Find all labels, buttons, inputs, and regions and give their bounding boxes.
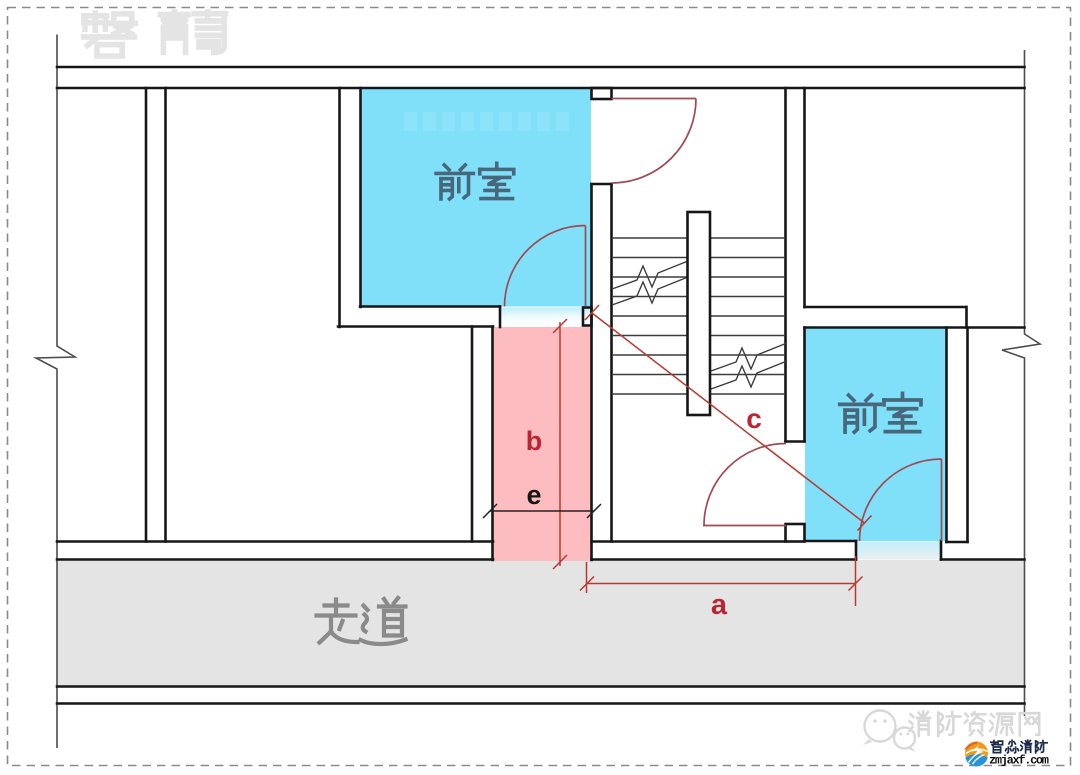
svg-text:c: c: [746, 403, 762, 434]
svg-text:zmjaxf.com: zmjaxf.com: [989, 754, 1049, 768]
svg-text:e: e: [526, 480, 541, 510]
svg-text:b: b: [526, 426, 543, 456]
svg-text:a: a: [711, 589, 728, 621]
